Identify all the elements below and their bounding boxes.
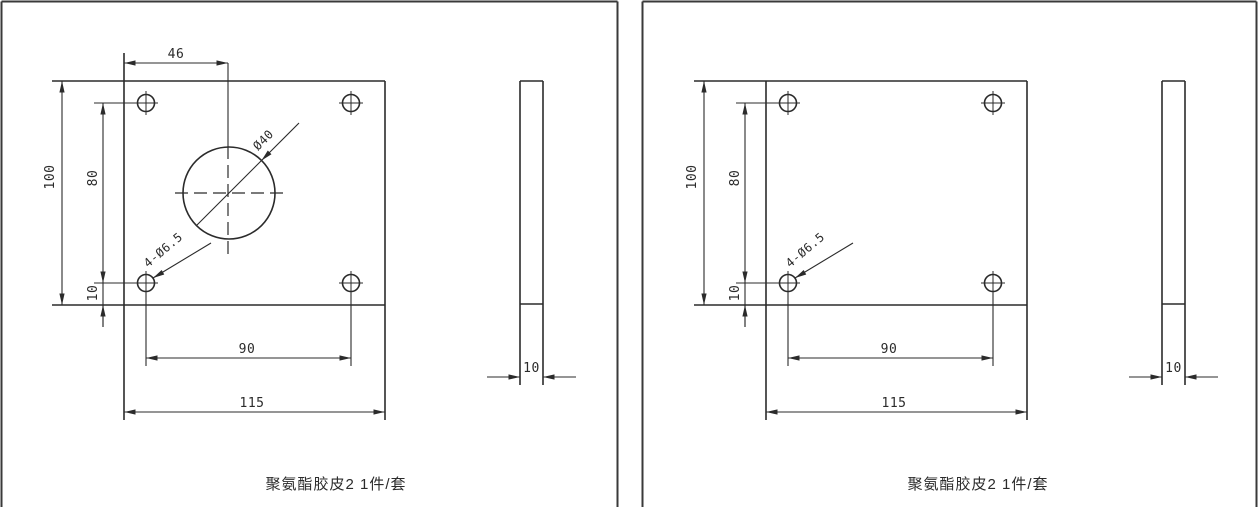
dimension-hole-span-vertical: 80 bbox=[86, 103, 146, 283]
corner-hole-top-right bbox=[339, 91, 363, 115]
dimension-text: 80 bbox=[86, 170, 101, 187]
dimension-text: 90 bbox=[881, 342, 898, 357]
dimension-text: 90 bbox=[239, 342, 256, 357]
corner-hole-top-right bbox=[981, 91, 1005, 115]
dimension-text: 100 bbox=[685, 165, 700, 190]
corner-holes-label: 4-Ø6.5 bbox=[141, 230, 186, 271]
dimension-plate-height: 100 bbox=[685, 81, 704, 305]
dimension-plate-width: 115 bbox=[766, 396, 1027, 412]
panel-frame-right bbox=[643, 2, 1257, 507]
dimension-text: 100 bbox=[43, 165, 58, 190]
dimension-plate-width: 115 bbox=[124, 396, 385, 412]
thickness-dimension-text: 10 bbox=[523, 361, 540, 376]
dimension-text: 10 bbox=[86, 285, 101, 302]
corner-holes-label: 4-Ø6.5 bbox=[783, 230, 828, 271]
corner-holes-callout: 4-Ø6.5 bbox=[783, 230, 853, 280]
dimension-hole-span-horizontal: 90 bbox=[788, 292, 993, 366]
panel-frame-left bbox=[2, 2, 618, 507]
caption: 聚氨酯胶皮2 1件/套 bbox=[907, 476, 1048, 493]
drawing-canvas: Ø40 46 100 80 10 4-Ø bbox=[0, 0, 1260, 507]
diameter-leader-line bbox=[197, 123, 300, 226]
center-hole: Ø40 bbox=[175, 123, 299, 254]
caption: 聚氨酯胶皮2 1件/套 bbox=[265, 476, 406, 493]
drawing-sheet: Ø40 46 100 80 10 4-Ø bbox=[0, 0, 1260, 507]
dimension-plate-height: 100 bbox=[43, 81, 62, 305]
drawing-right: 100 80 10 4-Ø6.5 90 bbox=[685, 81, 1218, 493]
dimension-text: 46 bbox=[168, 47, 185, 62]
corner-holes-callout: 4-Ø6.5 bbox=[141, 230, 211, 280]
dimension-hole-span-horizontal: 90 bbox=[146, 292, 351, 366]
side-view: 10 bbox=[1129, 81, 1218, 385]
corner-hole-bottom-right bbox=[339, 271, 363, 295]
side-view: 10 bbox=[487, 81, 576, 385]
corner-hole-bottom-right bbox=[981, 271, 1005, 295]
drawing-left: Ø40 46 100 80 10 4-Ø bbox=[43, 47, 576, 493]
dimension-text: 115 bbox=[882, 396, 907, 411]
dimension-text: 115 bbox=[240, 396, 265, 411]
dimension-hole-span-vertical: 80 bbox=[728, 103, 788, 283]
dimension-text: 10 bbox=[728, 285, 743, 302]
dimension-text: 80 bbox=[728, 170, 743, 187]
thickness-dimension-text: 10 bbox=[1165, 361, 1182, 376]
